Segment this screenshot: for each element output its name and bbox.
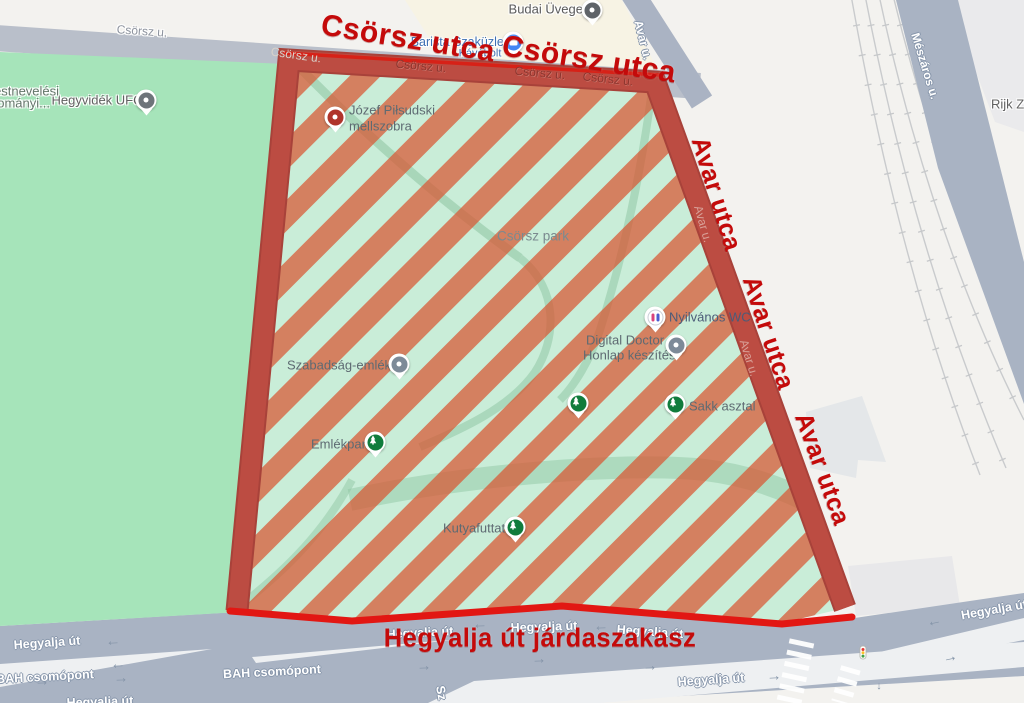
lane-arrow-right: →: [941, 647, 959, 667]
poi-label-truncated-line2: dományi...: [0, 97, 50, 110]
poi-label-rijk: Rijk Zw: [991, 98, 1024, 111]
map-viewport[interactable]: Csörsz u. Csörsz u. Csörsz u. Csörsz u. …: [0, 0, 1024, 703]
lane-arrow-left: ←: [925, 611, 943, 631]
poi-label-emlekpark[interactable]: Emlékpark: [311, 438, 372, 451]
poi-marker-kutyafuttato[interactable]: [505, 517, 526, 538]
poi-marker-hegyvidek-ufc[interactable]: [136, 90, 157, 111]
street-label-csorsz-u: Csörsz u.: [116, 23, 167, 39]
lane-arrow-right: →: [113, 669, 129, 687]
street-label-sz: Sz: [434, 685, 449, 702]
poi-marker-pilsudski[interactable]: [325, 107, 346, 128]
poi-label-nyilvanos-wc[interactable]: Nyilvános WC: [669, 311, 751, 324]
lane-arrow-right: →: [34, 672, 50, 690]
poi-label-pilsudski-line1[interactable]: Józef Piłsudski: [349, 104, 435, 117]
street-label-hegyalja: Hegyalja út: [66, 695, 133, 703]
tree-icon: [570, 395, 581, 406]
poi-label-sakk-asztal[interactable]: Sakk asztal: [689, 400, 755, 413]
poi-marker-emlekpark[interactable]: [365, 432, 386, 453]
lane-arrow-down: ↓: [876, 680, 882, 692]
poi-label-budai-uveges[interactable]: Budai Üveges: [509, 3, 590, 16]
poi-label-pilsudski-line2[interactable]: mellszobra: [349, 120, 412, 133]
traffic-light-icon: [860, 646, 866, 659]
poi-marker-tree[interactable]: [568, 393, 589, 414]
lane-arrow-right: →: [642, 657, 658, 675]
poi-label-hegyvidek-ufc[interactable]: Hegyvidék UFC: [51, 94, 142, 107]
lane-arrow-left: ←: [105, 632, 121, 650]
tree-icon: [667, 396, 678, 407]
poi-marker-digital-doctor[interactable]: [666, 335, 687, 356]
poi-label-kutyafuttato[interactable]: Kutyafuttató: [443, 522, 512, 535]
poi-label-digital-doctor-line1[interactable]: Digital Doctor: [586, 334, 664, 347]
poi-label-digital-doctor-line2[interactable]: Honlap készítés: [583, 349, 676, 362]
poi-marker-szabadsag-emlekmu[interactable]: [389, 354, 410, 375]
tree-icon: [367, 434, 378, 445]
poi-marker-budai-uveges[interactable]: [582, 0, 603, 21]
lane-arrow-right: →: [416, 657, 432, 675]
tree-icon: [507, 519, 518, 530]
poi-marker-nyilvanos-wc[interactable]: [645, 307, 666, 328]
lane-arrow-right: →: [766, 667, 782, 685]
poi-marker-sakk-asztal[interactable]: [665, 394, 686, 415]
poi-label-csorsz-park[interactable]: Csörsz park: [497, 229, 569, 243]
annotation-hegyalja-jardaszakasz: Hegyalja út járdaszakasz: [384, 625, 696, 654]
